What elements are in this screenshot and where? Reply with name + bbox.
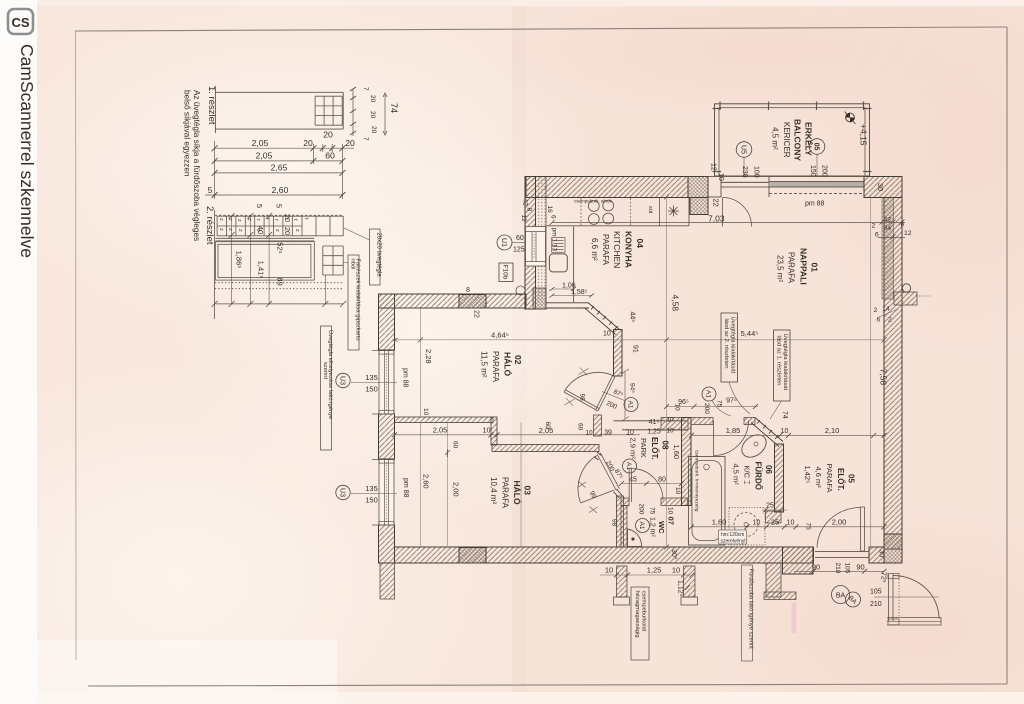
svg-text:pm 88: pm 88 [805,201,825,208]
svg-text:CamScannerrel szkennelve: CamScannerrel szkennelve [17,44,37,258]
svg-text:07: 07 [667,517,676,525]
svg-text:8: 8 [901,221,905,228]
svg-text:06: 06 [764,465,773,474]
svg-text:PARAFA: PARAFA [825,464,834,493]
svg-text:r: r [273,219,279,221]
svg-text:1,41⁵: 1,41⁵ [257,261,266,279]
svg-text:6,6 m²: 6,6 m² [590,238,599,261]
svg-text:5,44⁵: 5,44⁵ [741,329,759,338]
svg-text:90: 90 [812,563,820,572]
svg-text:2,00: 2,00 [832,518,847,527]
svg-text:U1: U1 [500,238,507,247]
svg-text:2,60: 2,60 [272,185,289,195]
svg-text:süt: süt [647,206,653,214]
svg-text:52⁵: 52⁵ [276,242,285,253]
svg-text:1,25: 1,25 [647,566,662,575]
svg-text:F10b: F10b [502,265,509,280]
svg-text:5: 5 [208,185,213,195]
svg-text:105: 105 [844,563,851,574]
svg-text:01: 01 [810,263,820,273]
svg-text:94⁵: 94⁵ [629,383,636,393]
svg-text:z: z [246,218,252,221]
svg-text:z: z [294,229,300,232]
svg-text:80: 80 [658,477,666,484]
svg-text:1,85: 1,85 [726,426,741,435]
svg-text:szerint: szerint [322,362,328,379]
svg-text:FÜRDŐ: FÜRDŐ [754,462,763,490]
svg-text:98: 98 [579,394,586,402]
svg-text:25: 25 [771,518,779,527]
svg-text:7: 7 [362,87,369,91]
svg-text:U5: U5 [740,145,747,154]
svg-text:HÁLÓ: HÁLÓ [512,481,523,505]
svg-text:z: z [218,218,224,221]
svg-text:BA: BA [836,593,846,600]
svg-text:20: 20 [369,95,376,103]
svg-text:U3: U3 [339,376,346,385]
svg-text:Az üvegtégla síkja a fürdőszob: Az üvegtégla síkja a fürdőszoba végleges [192,90,201,241]
svg-text:4,58: 4,58 [671,295,681,312]
svg-text:135: 135 [365,484,378,493]
svg-text:2: 2 [874,307,878,314]
svg-text:10: 10 [674,404,681,412]
svg-text:12: 12 [904,230,912,237]
svg-text:20: 20 [283,227,292,235]
svg-text:1,12⁵: 1,12⁵ [677,580,684,597]
svg-text:200: 200 [821,165,828,177]
svg-text:98: 98 [611,519,618,527]
svg-text:2,9 m²: 2,9 m² [629,438,638,460]
svg-text:90: 90 [856,563,864,572]
svg-text:11,5 m²: 11,5 m² [480,351,489,378]
svg-text:6: 6 [877,317,881,324]
svg-text:1,58⁵: 1,58⁵ [571,289,588,296]
svg-text:U3: U3 [339,488,346,497]
svg-text:34: 34 [884,225,892,232]
svg-text:PARAFA: PARAFA [601,234,610,266]
svg-text:4,64⁵: 4,64⁵ [491,331,509,340]
svg-text:2: 2 [888,317,892,324]
svg-text:10: 10 [674,487,681,495]
svg-text:20: 20 [369,111,376,119]
svg-text:Üvegtégla kialakítását: Üvegtégla kialakítását [730,317,737,374]
svg-text:6: 6 [550,215,557,219]
svg-text:Üvegtégla kialakítását: Üvegtégla kialakítását [782,334,789,391]
svg-text:10: 10 [482,426,490,435]
svg-text:20: 20 [370,126,377,134]
svg-text:csempeburkolat: csempeburkolat [641,591,647,632]
svg-text:10: 10 [717,173,724,181]
svg-text:125: 125 [513,247,525,254]
svg-text:05: 05 [813,143,820,151]
svg-text:210: 210 [834,563,841,574]
svg-text:HÁLÓ: HÁLÓ [503,352,514,376]
svg-text:BALCONY: BALCONY [793,119,803,161]
svg-text:r: r [264,218,270,220]
svg-text:02: 02 [513,355,523,365]
svg-text:2: 2 [872,223,876,230]
svg-text:10: 10 [781,428,789,435]
svg-text:200: 200 [703,403,710,414]
svg-text:1,42⁵: 1,42⁵ [803,466,812,484]
svg-text:238: 238 [741,166,748,178]
svg-text:+4,15: +4,15 [859,124,869,146]
svg-text:91: 91 [632,345,639,353]
svg-text:r: r [255,219,261,221]
svg-text:60: 60 [577,423,584,431]
svg-text:A1: A1 [638,522,645,530]
svg-text:20: 20 [303,138,313,148]
svg-text:44⁵: 44⁵ [629,312,636,323]
svg-text:A1: A1 [705,390,712,398]
svg-text:hézagmagasságig: hézagmagasságig [634,591,640,638]
svg-text:74: 74 [389,103,399,113]
svg-text:Fürdőszoba lakó igénye szerint: Fürdőszoba lakó igénye szerint [748,569,754,650]
svg-text:23,5 m²: 23,5 m² [776,255,785,282]
svg-text:szerelvényl: szerelvényl [721,539,746,545]
svg-text:2,65: 2,65 [271,163,288,173]
svg-text:22: 22 [473,310,480,318]
svg-text:PARK: PARK [639,438,648,458]
svg-text:150: 150 [365,496,378,505]
svg-text:lásd az 2. részleten: lásd az 2. részleten [723,319,729,369]
svg-text:210: 210 [870,601,882,608]
svg-text:1,2 m²: 1,2 m² [649,517,656,538]
svg-text:12: 12 [710,163,717,171]
svg-text:75: 75 [649,507,656,515]
svg-text:39: 39 [604,430,612,437]
svg-text:csempeburk. alnok: csempeburk. alnok [574,199,613,204]
svg-text:hm:120cm: hm:120cm [721,532,744,538]
svg-text:PARAFA: PARAFA [491,351,500,383]
svg-text:NAPPALI: NAPPALI [799,248,809,285]
svg-text:2,05: 2,05 [256,151,273,161]
svg-text:1,60: 1,60 [672,445,681,460]
svg-text:CS: CS [11,15,29,30]
svg-text:ELŐT.: ELŐT. [650,437,659,460]
svg-text:7,58: 7,58 [879,369,889,386]
svg-text:7: 7 [362,137,369,141]
svg-text:z: z [237,229,243,232]
svg-text:pm 88: pm 88 [402,478,409,498]
svg-text:2,05: 2,05 [252,138,269,148]
svg-text:10: 10 [626,430,634,437]
svg-text:5: 5 [275,204,284,208]
svg-text:4,5 m²: 4,5 m² [771,127,780,150]
svg-text:10: 10 [672,566,680,575]
svg-text:20: 20 [345,138,355,148]
svg-text:20: 20 [323,130,333,140]
svg-text:KONYHA: KONYHA [624,231,634,268]
svg-text:2,05: 2,05 [433,426,448,435]
svg-text:z: z [236,219,242,222]
svg-text:40: 40 [256,226,265,234]
svg-text:60: 60 [325,151,335,161]
svg-text:WC: WC [657,521,666,534]
svg-text:10: 10 [753,520,761,527]
svg-text:10: 10 [666,417,674,424]
svg-text:ERKÉLY: ERKÉLY [804,122,814,156]
svg-text:z: z [227,218,233,221]
svg-text:30°: 30° [670,549,678,560]
svg-text:42: 42 [522,199,529,207]
svg-text:A1: A1 [625,462,632,470]
svg-text:2,60: 2,60 [422,474,431,489]
svg-text:10: 10 [585,430,593,437]
svg-text:30: 30 [878,550,885,558]
svg-text:10: 10 [603,331,611,338]
svg-text:z: z [227,228,233,231]
svg-text:03: 03 [523,486,533,496]
svg-text:89: 89 [276,277,285,285]
svg-text:8: 8 [526,208,533,212]
svg-text:10: 10 [666,428,674,435]
svg-text:Falrészek kialakítása gipszkar: Falrészek kialakítása gipszkarto [355,259,361,341]
svg-text:05: 05 [847,474,856,483]
svg-text:A1: A1 [627,401,634,409]
svg-text:KITCHEN: KITCHEN [612,231,622,268]
svg-text:04: 04 [635,239,645,249]
svg-text:45: 45 [629,477,637,484]
svg-text:5: 5 [255,204,264,208]
svg-text:1,86⁵: 1,86⁵ [235,251,244,269]
svg-text:22: 22 [712,199,721,207]
svg-text:72⁵: 72⁵ [880,572,887,583]
svg-text:PARAFA: PARAFA [787,252,796,284]
svg-text:135: 135 [365,373,378,382]
svg-text:97⁵: 97⁵ [726,398,737,405]
svg-text:75: 75 [716,400,723,408]
svg-text:12: 12 [520,215,527,223]
svg-text:10: 10 [605,566,613,575]
svg-text:PARAFA: PARAFA [501,477,510,509]
svg-text:10: 10 [787,520,795,527]
svg-text:08: 08 [661,441,670,450]
svg-text:150: 150 [365,385,378,394]
svg-text:z: z [218,228,224,231]
svg-text:1,60: 1,60 [712,518,727,527]
svg-text:200: 200 [638,504,645,515]
svg-text:2,28: 2,28 [424,349,433,364]
svg-text:74: 74 [781,411,788,419]
svg-text:7,03: 7,03 [708,214,725,224]
svg-text:csempeburk. h=mennyezetig: csempeburk. h=mennyezetig [694,450,700,512]
svg-text:41⁵: 41⁵ [649,419,660,426]
svg-text:1,25: 1,25 [647,429,661,436]
svg-text:60: 60 [516,235,524,242]
svg-text:20x20 üvegtégla: 20x20 üvegtégla [376,233,382,278]
svg-text:150: 150 [809,165,816,177]
svg-text:belső síkjával egyezzen: belső síkjával egyezzen [183,90,192,177]
svg-text:8: 8 [466,287,470,294]
svg-text:10,4 m²: 10,4 m² [489,477,498,504]
svg-text:10: 10 [667,507,674,515]
svg-text:pm 88: pm 88 [402,368,409,388]
svg-text:4,6 m²: 4,6 m² [814,467,823,489]
svg-text:KERICER: KERICER [782,122,791,158]
svg-text:105: 105 [870,589,882,596]
svg-text:4,5 m²: 4,5 m² [732,464,741,486]
svg-text:30: 30 [876,183,885,191]
svg-text:2,05: 2,05 [539,426,554,435]
svg-text:z: z [274,229,280,232]
svg-text:2,00: 2,00 [452,482,461,497]
svg-text:10: 10 [422,408,429,416]
svg-text:ELŐT.: ELŐT. [836,468,845,491]
svg-text:2. részlet: 2. részlet [204,206,215,245]
svg-text:lásd az 1. részleten: lásd az 1. részleten [776,336,782,386]
svg-text:K/C ⌶: K/C ⌶ [743,466,752,486]
svg-text:100: 100 [753,166,760,178]
svg-text:14: 14 [882,306,890,313]
svg-text:75: 75 [805,523,812,531]
svg-text:16: 16 [546,206,553,214]
svg-text:nból: nból [350,259,356,270]
svg-text:20: 20 [283,214,292,222]
svg-text:2,10: 2,10 [825,426,840,435]
svg-text:60: 60 [452,441,459,449]
